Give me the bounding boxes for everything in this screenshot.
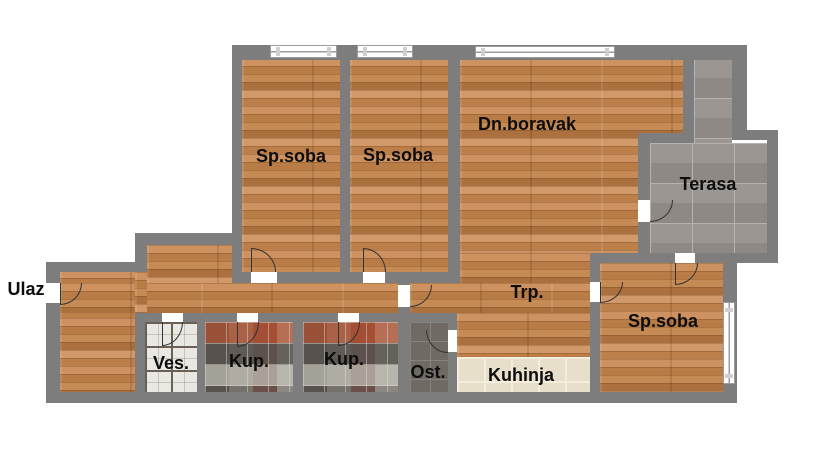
room-label-kitchen: Kuhinja bbox=[488, 366, 554, 384]
floor-terrace bbox=[650, 143, 767, 253]
room-label-living-room: Dn.boravak bbox=[478, 115, 576, 133]
floor-hall-band bbox=[60, 283, 398, 313]
floor-above-kitchen bbox=[457, 313, 590, 357]
window-bedroom-1 bbox=[270, 45, 337, 58]
wall-exterior-bottom bbox=[46, 392, 737, 403]
wall-terrace-right bbox=[767, 140, 778, 262]
door-gap-dining bbox=[398, 285, 410, 307]
floor-hall-nook bbox=[147, 245, 232, 283]
room-label-bedroom-1: Sp.soba bbox=[256, 147, 326, 165]
room-label-laundry: Ves. bbox=[153, 354, 189, 372]
room-label-dining: Trp. bbox=[510, 283, 543, 301]
wall-terrace-strip-right bbox=[732, 45, 747, 140]
room-label-storage: Ost. bbox=[410, 363, 445, 381]
wall-bedroom2-living-divider bbox=[448, 45, 460, 272]
room-label-entrance: Ulaz bbox=[7, 280, 44, 298]
door-gap-storage bbox=[448, 330, 457, 352]
wall-bedroom1-2-divider bbox=[340, 45, 350, 272]
wall-living-terrace-divider bbox=[683, 47, 694, 143]
floor-terrace-strip bbox=[694, 58, 732, 143]
door-gap-laundry bbox=[162, 313, 183, 322]
wall-laundry-left bbox=[135, 313, 145, 392]
door-gap-bathroom2 bbox=[338, 313, 359, 322]
wall-nook-top bbox=[135, 233, 232, 245]
window-living-room bbox=[475, 46, 615, 58]
wall-nook-left bbox=[135, 233, 147, 272]
wall-bedroom1-left bbox=[232, 45, 242, 283]
window-bedroom-2 bbox=[357, 45, 413, 58]
door-gap-entrance bbox=[46, 283, 60, 303]
door-gap-terrace-bedroom3 bbox=[675, 253, 695, 263]
room-label-bathroom-2: Kup. bbox=[324, 350, 364, 368]
wall-laundry-bath1-divider bbox=[197, 322, 205, 392]
room-label-bathroom-1: Kup. bbox=[229, 352, 269, 370]
room-label-bedroom-3: Sp.soba bbox=[628, 312, 698, 330]
floor-living-room bbox=[460, 58, 645, 263]
floor-living-to-dining bbox=[460, 253, 590, 283]
door-gap-bedroom2 bbox=[363, 272, 385, 283]
floor-hall-sliver bbox=[135, 272, 147, 313]
wall-terrace-step-block bbox=[645, 133, 694, 143]
wall-storage-right bbox=[448, 313, 457, 392]
room-label-bedroom-2: Sp.soba bbox=[363, 146, 433, 164]
wall-bath1-bath2-divider bbox=[293, 322, 303, 392]
floor-plan: Sp.soba Sp.soba Dn.boravak Terasa Trp. S… bbox=[0, 0, 827, 452]
room-label-terrace: Terasa bbox=[680, 175, 737, 193]
door-gap-terrace bbox=[638, 200, 650, 222]
wall-living-right-lower bbox=[638, 133, 650, 262]
door-gap-bathroom1 bbox=[237, 313, 258, 322]
window-bedroom-3 bbox=[723, 302, 735, 384]
wall-bedroom3-left bbox=[590, 253, 600, 392]
door-gap-bedroom3 bbox=[590, 282, 600, 302]
door-gap-bedroom1 bbox=[251, 272, 277, 283]
wall-terrace-notch bbox=[747, 130, 778, 140]
